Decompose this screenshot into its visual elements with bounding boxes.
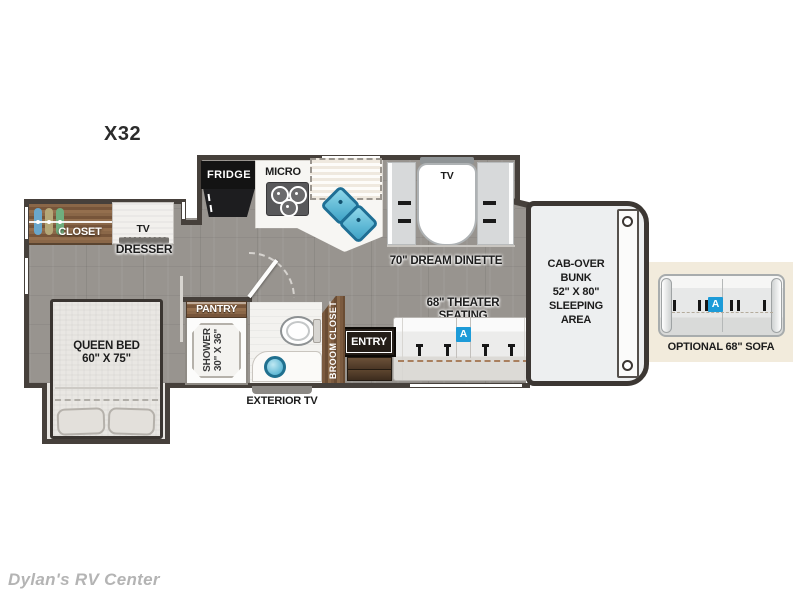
entry-steps [347,357,392,381]
armrest-icon [483,219,496,223]
toilet-tank [313,319,321,343]
seatbelt-icon [673,300,676,311]
seatbelt-icon [730,300,733,311]
window-marker [182,202,185,219]
seatbelt-icon [698,300,701,311]
armrest-icon [483,201,496,205]
recliner-handle-icon [510,344,513,356]
fridge-handle-icon [208,194,211,201]
closet-rail [29,221,112,223]
wall-segment [42,439,170,444]
slide-edge [387,245,515,247]
toilet-icon [280,315,322,349]
sofa-seat-line [672,312,773,313]
armrest-icon [398,219,411,223]
rv-floorplan-canvas: X32 CLOSET TV DRESSER QUEEN BED 60" X [0,0,800,600]
option-a-badge: A [456,327,471,342]
speaker-circle-icon [622,360,633,371]
wall-segment [165,383,170,444]
sofa-armrest [771,278,782,333]
option-a-badge: A [708,297,723,312]
recliner-handle-icon [418,344,421,356]
exterior-gap [186,150,197,218]
step [348,370,391,380]
broom-closet-label: BROOM CLOSET [328,300,340,380]
cab-over-bunk-label: CAB-OVER BUNK 52" X 80" SLEEPING AREA [532,257,620,327]
dealer-watermark: Dylan's RV Center [8,570,228,589]
bed-slide-line [55,399,158,401]
closet-label: CLOSET [50,226,110,238]
armrest-icon [398,201,411,205]
pantry-label: PANTRY [186,304,247,316]
dream-dinette-label: 70" DREAM DINETTE [388,255,504,268]
speaker-circle-icon [622,216,633,227]
floorplan-model-title: X32 [104,123,174,145]
dinette-tv-label: TV [417,171,477,183]
fridge-label: FRIDGE [201,169,257,181]
stove [266,182,309,216]
vanity-counter [252,351,322,382]
sofa-armrest [661,278,672,333]
blanket-line [55,387,158,389]
dresser-tv-label: TV [113,224,173,236]
seatbelt-icon [737,300,740,311]
seat-fold-line [398,360,529,362]
window-marker [410,384,522,387]
seat-divider [402,318,403,380]
exterior-tv-label: EXTERIOR TV [245,395,319,407]
optional-sofa-label: OPTIONAL 68" SOFA [660,341,782,353]
dresser-label: DRESSER [112,243,176,256]
window-marker [25,258,28,294]
seat-divider [524,318,525,380]
fridge-handle-icon [210,205,213,212]
exterior-tv-icon [252,386,312,394]
seatbelt-icon [763,300,766,311]
entry-label: ENTRY [342,336,396,348]
recliner-handle-icon [446,344,449,356]
dinette-bench [387,162,416,245]
window-marker [25,207,28,239]
recliner-handle-icon [484,344,487,356]
optional-sofa-inset: A OPTIONAL 68" SOFA [649,262,793,362]
micro-label: MICRO [256,166,310,178]
queen-bed-label: QUEEN BED 60" X 75" [57,340,156,366]
pillow-icon [57,407,106,436]
sink-round-icon [264,356,286,378]
wall-segment [42,383,47,444]
bedroom-divider-wall [180,276,183,342]
stove-burner-icon [280,199,298,217]
queen-bed [50,299,163,439]
windshield-strip [617,209,639,378]
shower-label: SHOWER 30" X 36" [202,318,232,382]
pillow-icon [108,407,156,436]
closet [29,204,112,245]
step [348,358,391,370]
dinette-bench [477,162,514,245]
toilet-seat [286,321,310,341]
wall-segment [515,155,520,204]
